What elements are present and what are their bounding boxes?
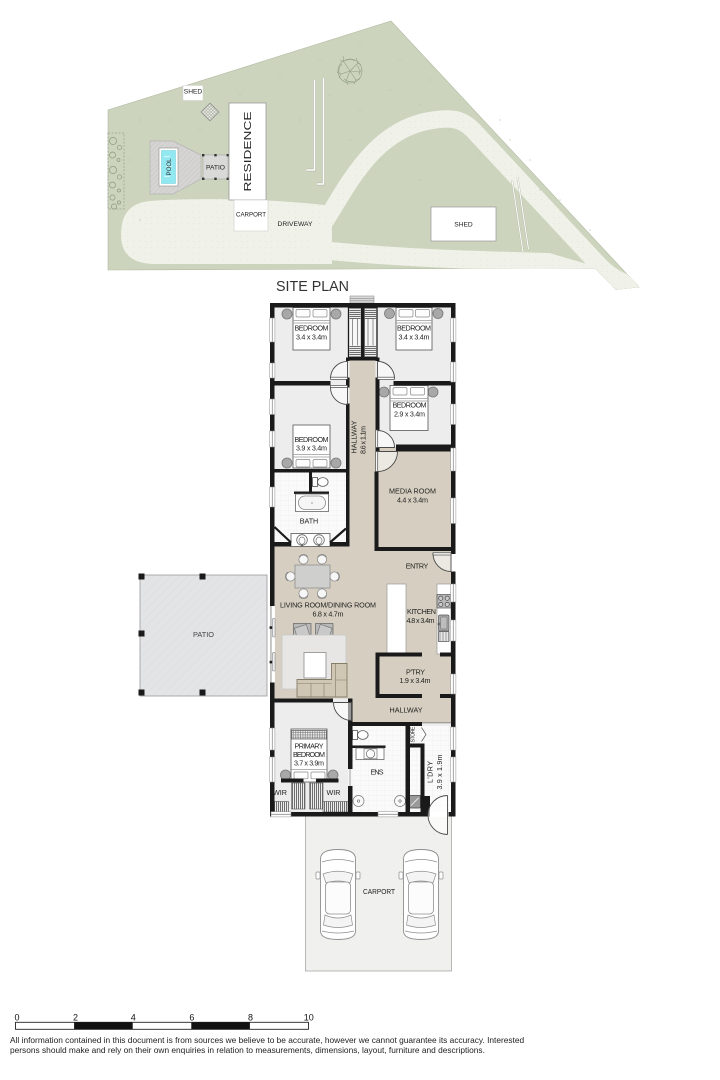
svg-text:LIVING ROOM/DINING ROOM: LIVING ROOM/DINING ROOM (280, 601, 376, 610)
svg-text:1.9 x 3.4m: 1.9 x 3.4m (400, 676, 431, 685)
svg-text:3.4 x 3.4m: 3.4 x 3.4m (399, 333, 430, 342)
svg-text:2.9 x 3.4m: 2.9 x 3.4m (394, 410, 425, 419)
svg-text:KITCHEN: KITCHEN (407, 607, 436, 616)
svg-text:HALLWAY: HALLWAY (350, 420, 359, 453)
svg-text:BEDROOM: BEDROOM (295, 324, 329, 333)
svg-text:3.7 x 3.9m: 3.7 x 3.9m (294, 759, 324, 768)
svg-text:8.6 x 1.1m: 8.6 x 1.1m (359, 426, 368, 454)
svg-text:CARPORT: CARPORT (363, 887, 395, 896)
svg-text:ENTRY: ENTRY (406, 562, 429, 571)
svg-text:6.8 x 4.7m: 6.8 x 4.7m (313, 610, 344, 619)
svg-text:4: 4 (131, 1012, 136, 1022)
svg-text:BEDROOM: BEDROOM (393, 401, 427, 410)
svg-text:POOL: POOL (166, 158, 173, 175)
svg-text:SHED: SHED (454, 222, 473, 229)
svg-text:SITE PLAN: SITE PLAN (276, 279, 349, 295)
svg-text:3.9 x 1.9m: 3.9 x 1.9m (435, 755, 444, 790)
svg-text:6: 6 (189, 1012, 194, 1022)
svg-text:WIR: WIR (273, 788, 287, 797)
svg-text:STORE: STORE (411, 726, 417, 743)
svg-text:10: 10 (304, 1012, 314, 1022)
svg-text:0: 0 (14, 1012, 19, 1022)
svg-text:CARPORT: CARPORT (236, 212, 266, 219)
svg-text:RESIDENCE: RESIDENCE (242, 112, 254, 192)
svg-text:3.9 x 3.4m: 3.9 x 3.4m (296, 444, 327, 453)
svg-text:BEDROOM: BEDROOM (397, 324, 431, 333)
svg-text:BATH: BATH (300, 517, 319, 526)
svg-text:persons should make and rely o: persons should make and rely on their ow… (10, 1045, 485, 1055)
svg-text:4.4 x 3.4m: 4.4 x 3.4m (397, 496, 428, 505)
svg-text:4.8 x 3.4m: 4.8 x 3.4m (407, 616, 435, 625)
svg-text:L'DRY: L'DRY (426, 761, 435, 783)
svg-text:PATIO: PATIO (206, 165, 225, 172)
svg-text:All information contained in t: All information contained in this docume… (10, 1035, 525, 1045)
svg-text:HALLWAY: HALLWAY (390, 706, 423, 715)
svg-text:WIR: WIR (327, 788, 341, 797)
svg-text:MEDIA ROOM: MEDIA ROOM (389, 487, 436, 496)
svg-text:ENS: ENS (371, 768, 384, 777)
svg-text:DRIVEWAY: DRIVEWAY (278, 221, 313, 228)
svg-text:8: 8 (248, 1012, 253, 1022)
svg-text:SHED: SHED (184, 89, 203, 96)
svg-text:2: 2 (73, 1012, 78, 1022)
svg-text:PATIO: PATIO (193, 630, 214, 639)
svg-text:3.4 x 3.4m: 3.4 x 3.4m (296, 333, 327, 342)
